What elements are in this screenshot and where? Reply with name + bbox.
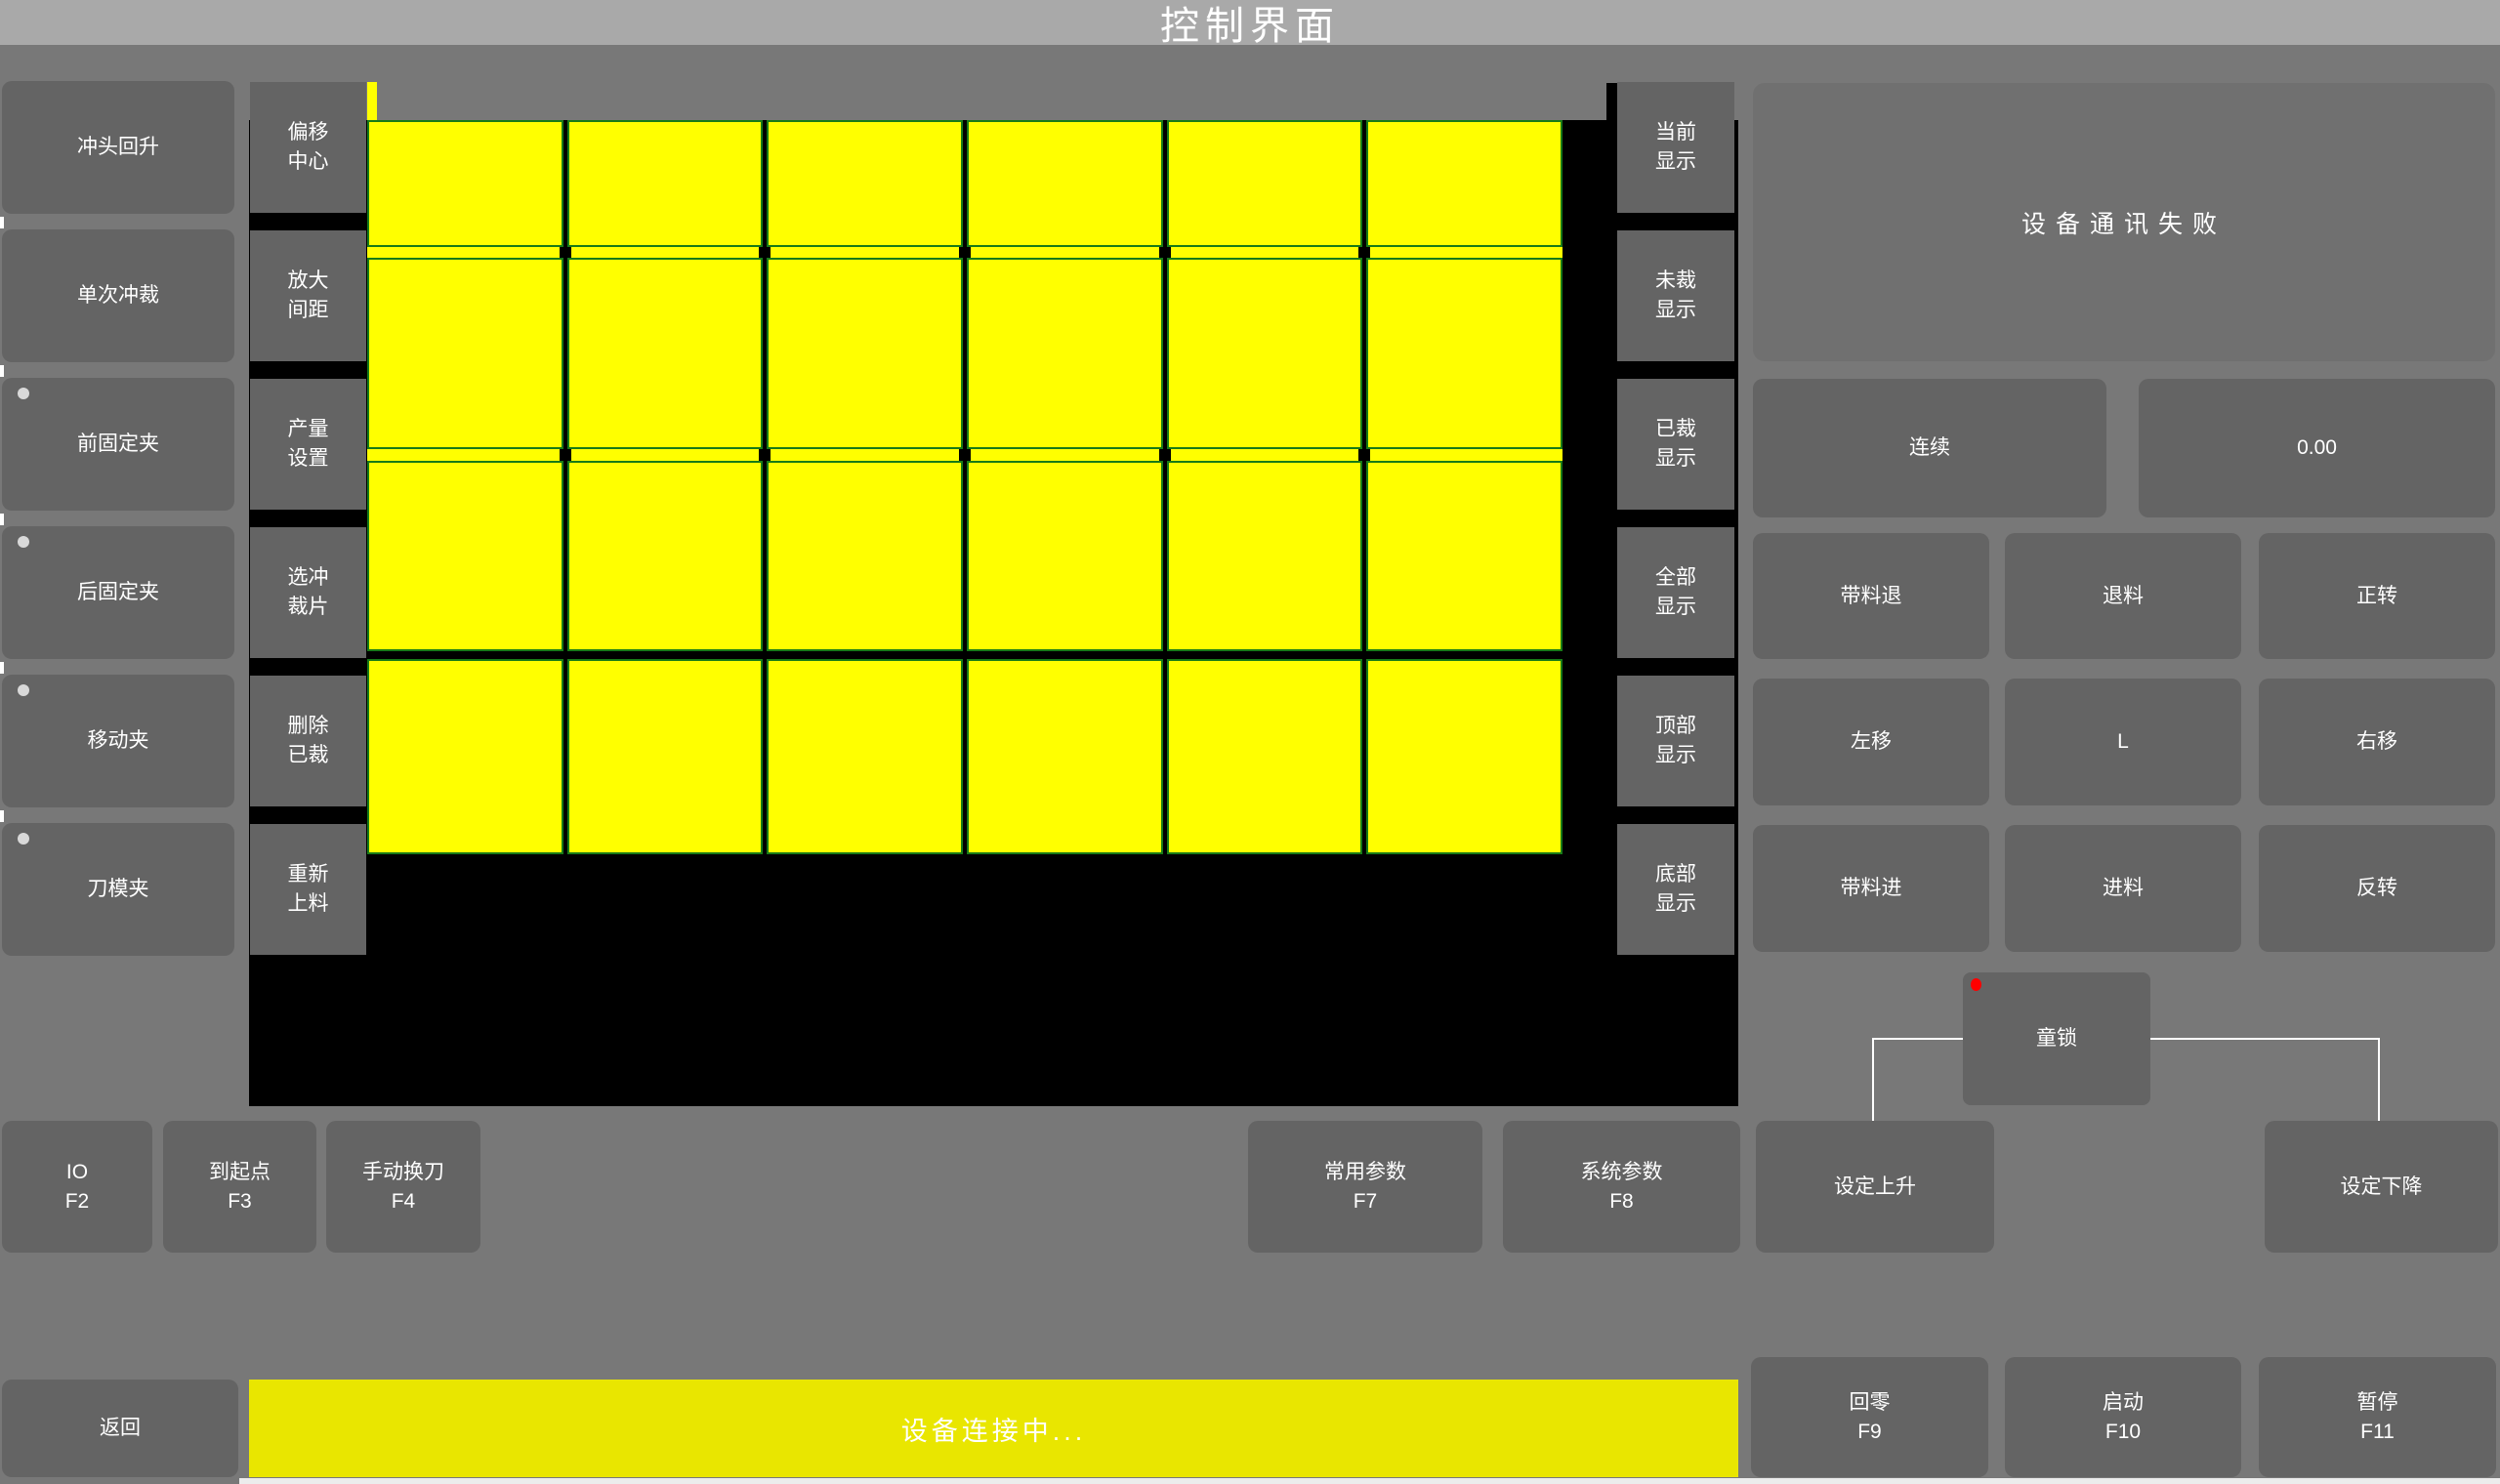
tool-reload-material[interactable]: 重新 上料 xyxy=(250,824,366,955)
jog-strip-feed-button[interactable]: 带料进 xyxy=(1753,825,1989,952)
set-lower-button[interactable]: 设定下降 xyxy=(2265,1121,2498,1253)
piece[interactable] xyxy=(767,659,963,854)
piece[interactable] xyxy=(1167,258,1363,449)
button-label: 设置 xyxy=(288,444,329,474)
button-label: 回零 xyxy=(1850,1388,1891,1418)
status-dot xyxy=(18,388,29,399)
piece[interactable] xyxy=(367,120,563,247)
button-label: 放大 xyxy=(288,267,329,296)
button-label: 反转 xyxy=(2356,874,2397,903)
sidebar-item-rear-clamp[interactable]: 后固定夹 xyxy=(2,526,234,659)
pause-button-f11[interactable]: 暂停 F11 xyxy=(2259,1357,2496,1477)
button-label: 连续 xyxy=(1909,433,1950,463)
button-label: 刀模夹 xyxy=(88,875,149,904)
edge-mark xyxy=(0,662,4,674)
fkey-to-origin-f3[interactable]: 到起点 F3 xyxy=(163,1121,316,1253)
tool-delete-cut[interactable]: 删除 已裁 xyxy=(250,676,366,806)
piece[interactable] xyxy=(767,461,963,651)
button-label: IO xyxy=(66,1158,88,1187)
piece[interactable] xyxy=(1366,659,1562,854)
edge-mark xyxy=(0,810,4,822)
value-text: 0.00 xyxy=(2297,433,2337,463)
cut-mark xyxy=(1358,449,1370,461)
jog-forward-rotate-button[interactable]: 正转 xyxy=(2259,533,2495,659)
cut-mark xyxy=(560,449,571,461)
fkey-label: F4 xyxy=(392,1187,416,1216)
title-bar: 控制界面 xyxy=(0,0,2500,45)
button-label: 已裁 xyxy=(288,741,329,770)
piece-row xyxy=(367,120,1562,247)
piece[interactable] xyxy=(767,120,963,247)
value-display[interactable]: 0.00 xyxy=(2139,379,2495,517)
piece[interactable] xyxy=(967,120,1163,247)
sidebar-item-die-clamp[interactable]: 刀模夹 xyxy=(2,823,234,956)
button-label: 删除 xyxy=(288,712,329,741)
jog-feed-button[interactable]: 进料 xyxy=(2005,825,2241,952)
piece-row xyxy=(367,258,1562,449)
button-label: 后固定夹 xyxy=(77,578,159,607)
piece[interactable] xyxy=(1366,258,1562,449)
button-label: 上料 xyxy=(288,889,329,919)
cut-mark xyxy=(759,247,771,258)
sheet[interactable] xyxy=(367,120,1562,854)
piece[interactable] xyxy=(967,659,1163,854)
edge-mark xyxy=(0,217,4,228)
button-label: 单次冲裁 xyxy=(77,281,159,310)
piece[interactable] xyxy=(567,258,764,449)
tool-enlarge-spacing[interactable]: 放大 间距 xyxy=(250,230,366,361)
sidebar-item-moving-clamp[interactable]: 移动夹 xyxy=(2,675,234,807)
button-label: 冲头回升 xyxy=(77,133,159,162)
set-rise-button[interactable]: 设定上升 xyxy=(1756,1121,1994,1253)
sidebar-item-single-punch[interactable]: 单次冲裁 xyxy=(2,229,234,362)
button-label: 暂停 xyxy=(2357,1388,2398,1418)
button-label: 移动夹 xyxy=(88,726,149,756)
status-dot xyxy=(18,684,29,696)
button-label: 带料退 xyxy=(1841,582,1902,611)
fkey-common-params-f7[interactable]: 常用参数 F7 xyxy=(1248,1121,1482,1253)
fkey-io-f2[interactable]: IO F2 xyxy=(2,1121,152,1253)
cut-mark xyxy=(759,449,771,461)
button-label: 中心 xyxy=(288,147,329,177)
button-label: 已裁 xyxy=(1655,415,1696,444)
piece[interactable] xyxy=(1366,120,1562,247)
button-label: 手动换刀 xyxy=(362,1158,444,1187)
jog-unload-button[interactable]: 退料 xyxy=(2005,533,2241,659)
button-label: 全部 xyxy=(1655,563,1696,593)
jog-move-right-button[interactable]: 右移 xyxy=(2259,679,2495,805)
button-label: 显示 xyxy=(1655,444,1696,474)
button-label: 显示 xyxy=(1655,889,1696,919)
button-label: 未裁 xyxy=(1655,267,1696,296)
mode-continuous-button[interactable]: 连续 xyxy=(1753,379,2106,517)
button-label: 退料 xyxy=(2103,582,2144,611)
button-label: 偏移 xyxy=(288,118,329,147)
button-label: 显示 xyxy=(1655,593,1696,622)
tool-offset-center[interactable]: 偏移 中心 xyxy=(250,82,366,213)
button-label: 显示 xyxy=(1655,296,1696,325)
button-label: 显示 xyxy=(1655,741,1696,770)
jog-l-button[interactable]: L xyxy=(2005,679,2241,805)
status-dot xyxy=(18,536,29,548)
fkey-label: F8 xyxy=(1609,1187,1634,1216)
fkey-label: F11 xyxy=(2360,1418,2395,1447)
page-title: 控制界面 xyxy=(1160,0,1340,51)
button-label: 顶部 xyxy=(1655,712,1696,741)
display-uncut[interactable]: 未裁 显示 xyxy=(1617,230,1734,361)
button-label: 显示 xyxy=(1655,147,1696,177)
sheet-top-notch xyxy=(367,82,377,121)
tool-select-pieces[interactable]: 选冲 裁片 xyxy=(250,527,366,658)
button-label: 进料 xyxy=(2103,874,2144,903)
display-bottom[interactable]: 底部 显示 xyxy=(1617,824,1734,955)
button-label: 重新 xyxy=(288,860,329,889)
alarm-message: 设备通讯失败 xyxy=(2021,205,2227,240)
bracket-line-right xyxy=(2378,1038,2380,1121)
edge-mark xyxy=(0,514,4,525)
display-all[interactable]: 全部 显示 xyxy=(1617,527,1734,658)
fkey-label: F2 xyxy=(65,1187,90,1216)
display-cut[interactable]: 已裁 显示 xyxy=(1617,379,1734,510)
piece[interactable] xyxy=(967,258,1163,449)
piece[interactable] xyxy=(567,461,764,651)
cut-mark xyxy=(959,449,971,461)
bottom-edge-strip xyxy=(239,1478,2500,1484)
button-label: 系统参数 xyxy=(1581,1158,1663,1187)
button-label: 右移 xyxy=(2356,727,2397,757)
button-label: 裁片 xyxy=(288,593,329,622)
jog-reverse-rotate-button[interactable]: 反转 xyxy=(2259,825,2495,952)
piece-row xyxy=(367,461,1562,651)
sidebar-item-front-clamp[interactable]: 前固定夹 xyxy=(2,378,234,511)
button-label: 底部 xyxy=(1655,860,1696,889)
piece[interactable] xyxy=(367,659,563,854)
fkey-label: F3 xyxy=(228,1187,252,1216)
jog-strip-back-button[interactable]: 带料退 xyxy=(1753,533,1989,659)
piece[interactable] xyxy=(1167,461,1363,651)
cut-mark xyxy=(1159,247,1171,258)
fkey-label: F7 xyxy=(1354,1187,1378,1216)
piece[interactable] xyxy=(1366,461,1562,651)
tool-output-setting[interactable]: 产量 设置 xyxy=(250,379,366,510)
start-button-f10[interactable]: 启动 F10 xyxy=(2005,1357,2241,1477)
edge-mark xyxy=(0,365,4,377)
row-separator-band xyxy=(367,651,1562,659)
piece[interactable] xyxy=(367,461,563,651)
status-dot xyxy=(18,833,29,845)
piece[interactable] xyxy=(567,659,764,854)
button-label: 前固定夹 xyxy=(77,430,159,459)
button-label: 启动 xyxy=(2103,1388,2144,1418)
display-current[interactable]: 当前 显示 xyxy=(1617,82,1734,213)
button-label: 童锁 xyxy=(2036,1024,2077,1053)
button-label: 返回 xyxy=(100,1414,141,1443)
button-label: 正转 xyxy=(2356,582,2397,611)
piece-row xyxy=(367,659,1562,854)
button-label: L xyxy=(2117,727,2129,757)
button-label: 当前 xyxy=(1655,118,1696,147)
button-label: 左移 xyxy=(1851,727,1892,757)
button-label: 带料进 xyxy=(1841,874,1902,903)
piece[interactable] xyxy=(367,258,563,449)
back-button[interactable]: 返回 xyxy=(2,1380,238,1477)
fkey-label: F10 xyxy=(2105,1418,2141,1447)
fkey-system-params-f8[interactable]: 系统参数 F8 xyxy=(1503,1121,1740,1253)
piece[interactable] xyxy=(967,461,1163,651)
piece[interactable] xyxy=(1167,120,1363,247)
button-label: 到起点 xyxy=(209,1158,271,1187)
bracket-line-left xyxy=(1872,1038,1874,1121)
cut-mark xyxy=(959,247,971,258)
button-label: 产量 xyxy=(288,415,329,444)
child-lock-button[interactable]: 童锁 xyxy=(1963,972,2150,1105)
piece[interactable] xyxy=(1167,659,1363,854)
status-bar: 设备连接中... xyxy=(249,1380,1738,1477)
status-text: 设备连接中... xyxy=(901,1410,1087,1448)
fkey-label: F9 xyxy=(1857,1418,1882,1447)
alert-dot-icon xyxy=(1971,978,1981,991)
jog-move-left-button[interactable]: 左移 xyxy=(1753,679,1989,805)
button-label: 设定上升 xyxy=(1834,1173,1916,1202)
piece[interactable] xyxy=(567,120,764,247)
cut-mark xyxy=(560,247,571,258)
home-zero-button-f9[interactable]: 回零 F9 xyxy=(1751,1357,1988,1477)
alarm-message-panel: 设备通讯失败 xyxy=(1753,83,2495,361)
fkey-manual-toolchange-f4[interactable]: 手动换刀 F4 xyxy=(326,1121,480,1253)
button-label: 常用参数 xyxy=(1324,1158,1406,1187)
sidebar-item-punch-return[interactable]: 冲头回升 xyxy=(2,81,234,214)
piece[interactable] xyxy=(767,258,963,449)
cut-mark xyxy=(1159,449,1171,461)
cut-mark xyxy=(1358,247,1370,258)
button-label: 选冲 xyxy=(288,563,329,593)
display-top[interactable]: 顶部 显示 xyxy=(1617,676,1734,806)
button-label: 设定下降 xyxy=(2341,1173,2423,1202)
button-label: 间距 xyxy=(288,296,329,325)
